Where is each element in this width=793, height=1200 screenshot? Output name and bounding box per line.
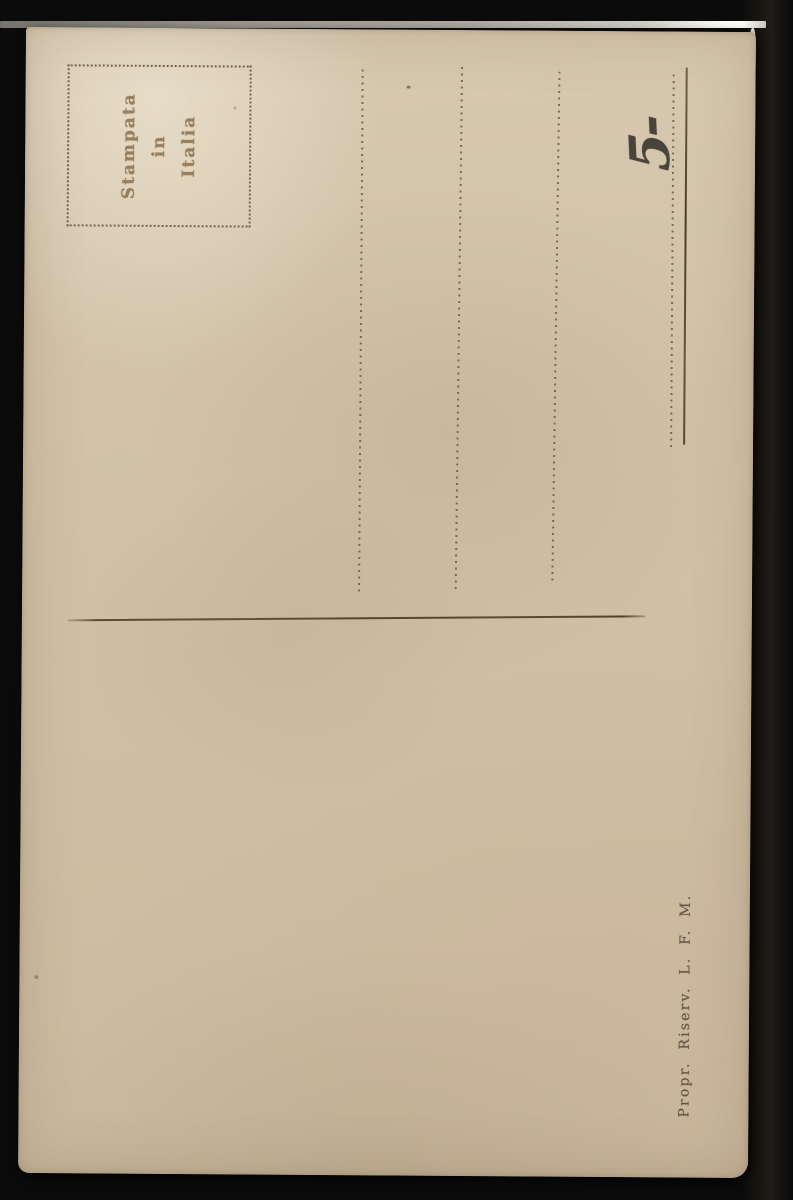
message-address-divider-line: [68, 615, 646, 621]
paper-speck: [407, 86, 411, 89]
scan-background: Stampata in Italia 5- Propr. Riserv. L. …: [0, 0, 793, 1200]
address-dotted-line-1: [358, 69, 364, 593]
postcard-back: Stampata in Italia 5- Propr. Riserv. L. …: [18, 27, 756, 1178]
address-dotted-line-2: [455, 67, 463, 591]
handwritten-price: 5-: [616, 116, 683, 172]
address-dotted-line-3: [551, 72, 560, 583]
paper-speck: [34, 975, 38, 979]
paper-speck: [233, 106, 236, 109]
printed-edge-line: [683, 68, 688, 445]
stamp-box: Stampata in Italia: [67, 64, 252, 227]
publisher-imprint: Propr. Riserv. L. F. M.: [676, 894, 694, 1118]
stamp-line-3: Italia: [174, 82, 205, 210]
stamp-line-2: in: [144, 82, 175, 210]
stamp-line-1: Stampata: [114, 82, 145, 210]
stamp-box-label: Stampata in Italia: [114, 82, 205, 211]
